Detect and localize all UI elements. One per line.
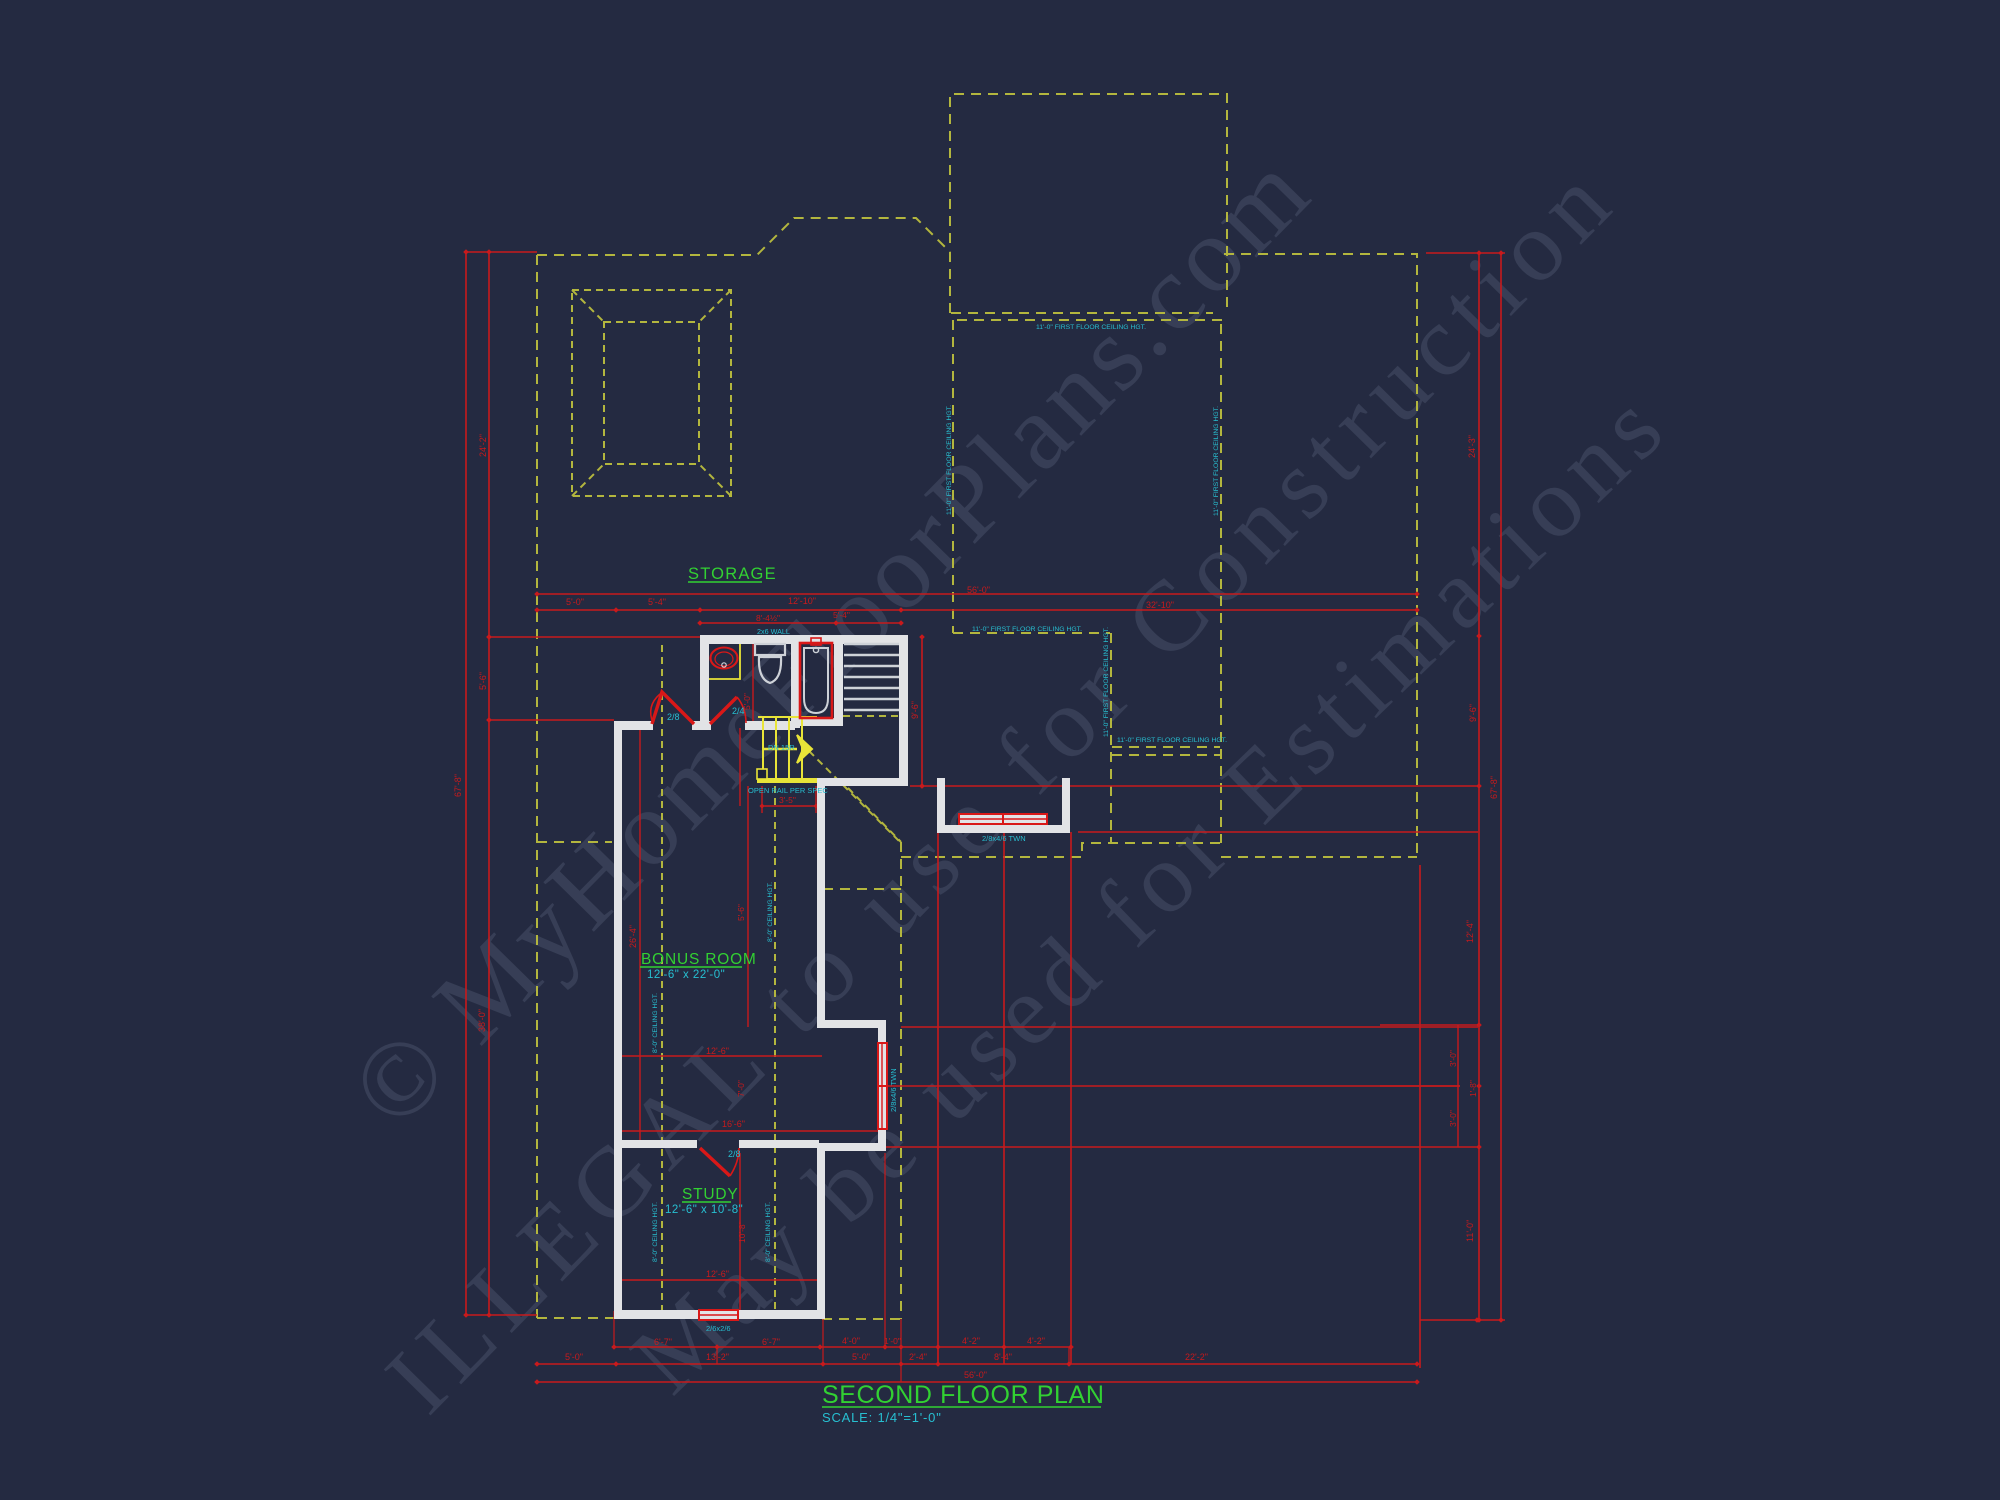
svg-text:9'-6": 9'-6" (1468, 704, 1478, 722)
svg-text:SECOND FLOOR PLAN: SECOND FLOOR PLAN (822, 1381, 1104, 1409)
svg-text:12'-6" x 10'-8": 12'-6" x 10'-8" (665, 1204, 743, 1216)
svg-text:8'-4½": 8'-4½" (756, 613, 780, 623)
svg-text:8'-0" CEILING HGT.: 8'-0" CEILING HGT. (765, 1202, 772, 1262)
svg-text:22'-2": 22'-2" (1185, 1352, 1208, 1362)
svg-text:1'-0": 1'-0" (884, 1336, 901, 1346)
svg-text:DN 15R: DN 15R (768, 743, 795, 752)
svg-text:11'-0" FIRST FLOOR CEILING HGT: 11'-0" FIRST FLOOR CEILING HGT. (1103, 627, 1110, 737)
svg-text:11'-0" FIRST FLOOR CEILING HGT: 11'-0" FIRST FLOOR CEILING HGT. (1036, 324, 1146, 331)
svg-text:12'-6": 12'-6" (706, 1269, 729, 1279)
svg-text:6'-7": 6'-7" (654, 1337, 672, 1347)
svg-text:67'-8": 67'-8" (453, 774, 463, 797)
svg-text:12'-10": 12'-10" (788, 596, 816, 606)
svg-text:8'-0" CEILING HGT.: 8'-0" CEILING HGT. (652, 1202, 659, 1262)
svg-text:67'-8": 67'-8" (1489, 776, 1499, 799)
svg-text:2/8: 2/8 (728, 1149, 741, 1159)
svg-text:1'-8": 1'-8" (1468, 1080, 1478, 1097)
svg-text:11'-0" FIRST FLOOR CEILING HGT: 11'-0" FIRST FLOOR CEILING HGT. (1117, 737, 1227, 744)
svg-text:5'-4": 5'-4" (833, 610, 850, 620)
svg-text:2/8: 2/8 (667, 712, 680, 722)
svg-text:12'-6": 12'-6" (706, 1046, 729, 1056)
svg-text:4'-0": 4'-0" (842, 1336, 860, 1346)
svg-text:BONUS ROOM: BONUS ROOM (641, 951, 757, 968)
svg-text:8'-4": 8'-4" (994, 1352, 1012, 1362)
svg-text:5'-6": 5'-6" (478, 672, 488, 690)
svg-text:5'-6": 5'-6" (736, 904, 746, 921)
svg-text:3'-5": 3'-5" (779, 795, 796, 805)
svg-text:5'-4": 5'-4" (648, 597, 666, 607)
svg-text:2/6x2/6: 2/6x2/6 (706, 1324, 731, 1333)
svg-text:56'-0": 56'-0" (967, 585, 990, 595)
svg-text:5'-0": 5'-0" (566, 597, 584, 607)
svg-text:2/8x4/6 TWN: 2/8x4/6 TWN (889, 1068, 898, 1112)
svg-text:38'-0": 38'-0" (477, 1009, 487, 1032)
svg-text:5'-0": 5'-0" (852, 1352, 870, 1362)
svg-text:7'-0": 7'-0" (736, 1080, 746, 1097)
svg-text:9'-6": 9'-6" (910, 701, 920, 719)
svg-text:26'-4": 26'-4" (628, 925, 638, 948)
svg-text:3'-0": 3'-0" (1448, 1110, 1458, 1127)
svg-text:32'-10": 32'-10" (1146, 600, 1174, 610)
svg-text:4'-2": 4'-2" (962, 1336, 980, 1346)
svg-text:STUDY: STUDY (682, 1186, 739, 1203)
svg-text:16'-6": 16'-6" (722, 1119, 745, 1129)
svg-text:24'-2": 24'-2" (478, 434, 488, 457)
svg-text:11'-0" FIRST FLOOR CEILING HGT: 11'-0" FIRST FLOOR CEILING HGT. (946, 405, 953, 515)
svg-text:2'-4": 2'-4" (909, 1352, 927, 1362)
svg-text:11'-0": 11'-0" (1465, 1220, 1475, 1242)
svg-text:24'-3": 24'-3" (1467, 435, 1477, 458)
svg-text:56'-0": 56'-0" (964, 1370, 987, 1380)
svg-text:11'-0" FIRST FLOOR CEILING HGT: 11'-0" FIRST FLOOR CEILING HGT. (972, 626, 1082, 633)
svg-text:STORAGE: STORAGE (688, 565, 777, 583)
svg-text:2/4: 2/4 (732, 706, 745, 716)
svg-text:11'-0" FIRST FLOOR CEILING HGT: 11'-0" FIRST FLOOR CEILING HGT. (1213, 406, 1220, 516)
svg-text:8'-0" CEILING HGT.: 8'-0" CEILING HGT. (652, 993, 659, 1053)
svg-text:SCALE: 1/4"=1'-0": SCALE: 1/4"=1'-0" (822, 1410, 942, 1425)
svg-text:12'-6" x 22'-0": 12'-6" x 22'-0" (647, 969, 725, 981)
svg-text:8'-0" CEILING HGT.: 8'-0" CEILING HGT. (767, 882, 774, 942)
svg-text:2/8x4/6 TWN: 2/8x4/6 TWN (982, 834, 1026, 843)
svg-text:2x6 WALL: 2x6 WALL (757, 627, 790, 636)
svg-text:10'-8": 10'-8" (737, 1221, 747, 1243)
svg-text:12'-4": 12'-4" (1465, 920, 1475, 943)
svg-text:OPEN RAIL PER SPEC: OPEN RAIL PER SPEC (748, 786, 828, 795)
svg-text:4'-2": 4'-2" (1027, 1336, 1045, 1346)
svg-text:5'-0": 5'-0" (565, 1352, 583, 1362)
svg-text:3'-0": 3'-0" (1448, 1050, 1458, 1067)
svg-text:6'-7": 6'-7" (762, 1337, 780, 1347)
